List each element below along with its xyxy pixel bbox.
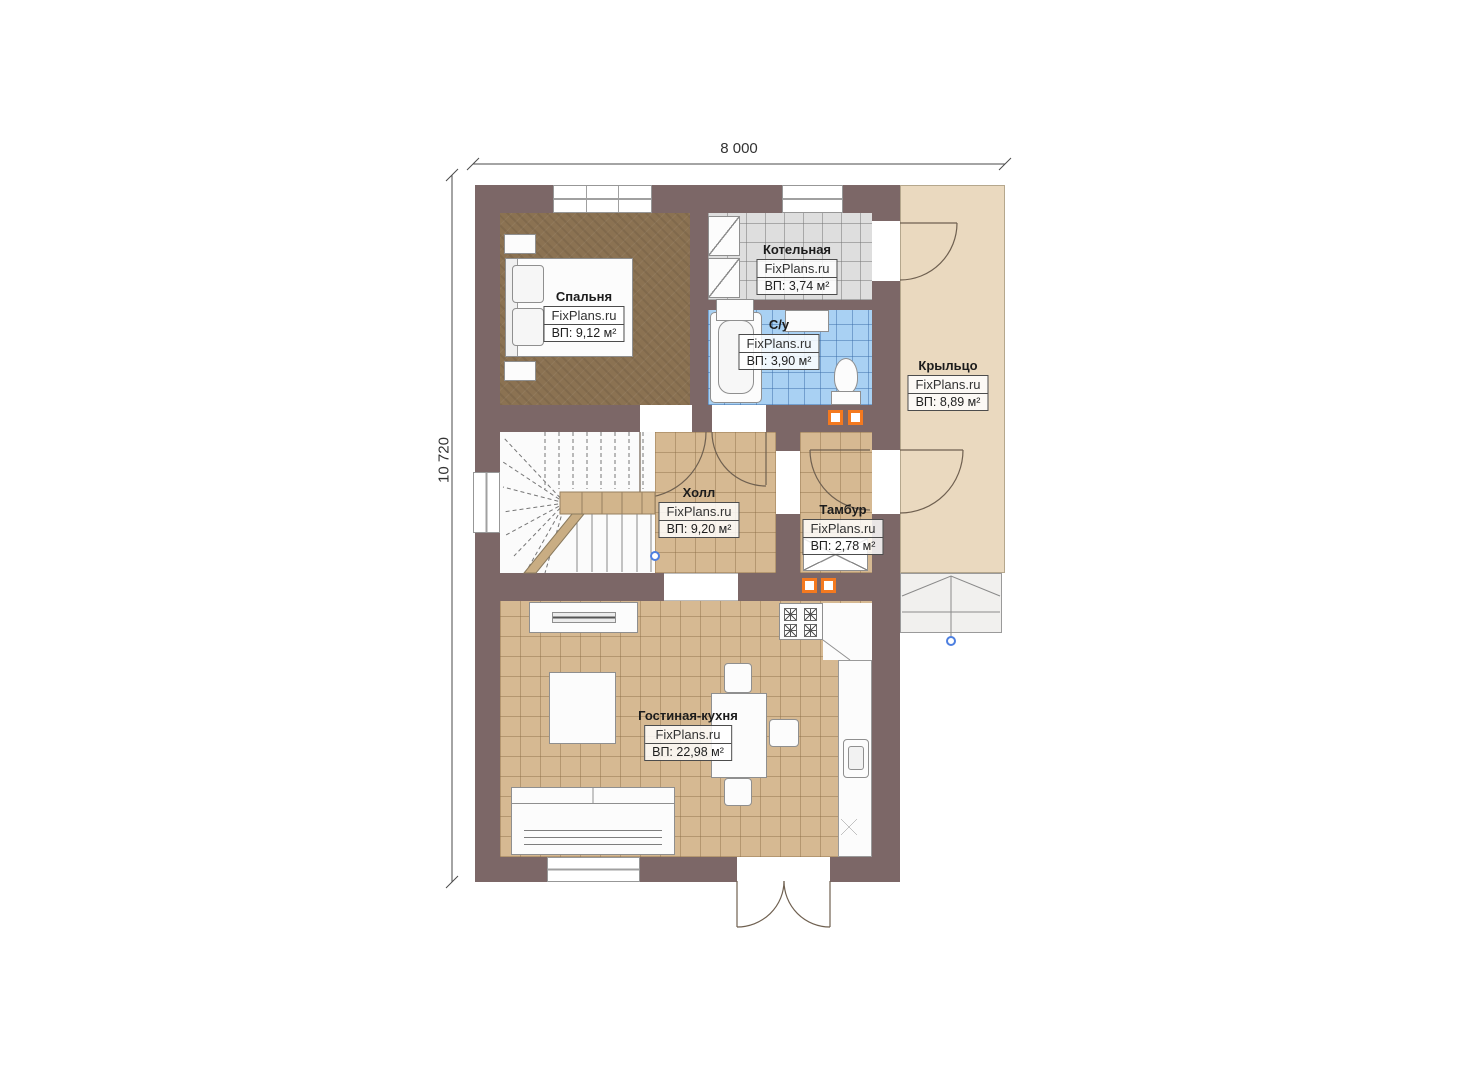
room-area: ВП: 22,98 м² xyxy=(645,744,731,760)
room-label-living: Гостиная-кухня FixPlans.ru ВП: 22,98 м² xyxy=(638,708,738,761)
room-area: ВП: 3,90 м² xyxy=(739,353,818,369)
bathroom-door-arc xyxy=(712,432,766,486)
room-label-bathroom: С/у FixPlans.ru ВП: 3,90 м² xyxy=(738,317,819,370)
room-info-box: FixPlans.ru ВП: 9,20 м² xyxy=(658,502,739,538)
room-label-hall: Холл FixPlans.ru ВП: 9,20 м² xyxy=(658,485,739,538)
floor-plan-canvas: 8 000 10 720 Спальня FixPlans.ru ВП: 9,1… xyxy=(0,0,1474,1080)
room-info-box: FixPlans.ru ВП: 3,74 м² xyxy=(756,259,837,295)
room-area: ВП: 3,74 м² xyxy=(757,278,836,294)
room-area: ВП: 8,89 м² xyxy=(908,394,987,410)
room-label-bedroom: Спальня FixPlans.ru ВП: 9,12 м² xyxy=(543,289,624,342)
brand-label: FixPlans.ru xyxy=(757,260,836,278)
height-dimension-label: 10 720 xyxy=(436,437,453,483)
brand-label: FixPlans.ru xyxy=(739,335,818,353)
room-info-box: FixPlans.ru ВП: 3,90 м² xyxy=(738,334,819,370)
survey-point-icon xyxy=(651,552,659,560)
width-dimension-label: 8 000 xyxy=(720,140,758,157)
entrance-door-arc xyxy=(810,450,870,510)
room-area: ВП: 9,20 м² xyxy=(659,521,738,537)
boiler-porch-door-arc xyxy=(900,223,957,280)
room-label-porch: Крыльцо FixPlans.ru ВП: 8,89 м² xyxy=(907,358,988,411)
staircase-lines xyxy=(503,432,655,573)
room-name: Крыльцо xyxy=(918,358,977,373)
room-label-tambour: Тамбур FixPlans.ru ВП: 2,78 м² xyxy=(802,502,883,555)
stair-landing xyxy=(560,492,655,514)
room-name: Спальня xyxy=(556,289,612,304)
brand-label: FixPlans.ru xyxy=(645,726,731,744)
brand-label: FixPlans.ru xyxy=(803,520,882,538)
french-door-arc xyxy=(784,881,830,927)
room-name: Котельная xyxy=(763,242,831,257)
porch-steps-lines xyxy=(902,576,1000,640)
room-name: Холл xyxy=(683,485,716,500)
room-label-boiler: Котельная FixPlans.ru ВП: 3,74 м² xyxy=(756,242,837,295)
room-area: ВП: 2,78 м² xyxy=(803,538,882,554)
room-info-box: FixPlans.ru ВП: 2,78 м² xyxy=(802,519,883,555)
room-name: Гостиная-кухня xyxy=(638,708,738,723)
room-area: ВП: 9,12 м² xyxy=(544,325,623,341)
room-name: Тамбур xyxy=(819,502,866,517)
room-info-box: FixPlans.ru ВП: 9,12 м² xyxy=(543,306,624,342)
brand-label: FixPlans.ru xyxy=(659,503,738,521)
brand-label: FixPlans.ru xyxy=(544,307,623,325)
french-door-arc xyxy=(737,881,784,927)
room-name: С/у xyxy=(769,317,789,332)
tambour-porch-door-arc xyxy=(900,450,963,513)
brand-label: FixPlans.ru xyxy=(908,376,987,394)
counter-corner-edge xyxy=(823,640,850,660)
room-info-box: FixPlans.ru ВП: 8,89 м² xyxy=(907,375,988,411)
survey-point-icon xyxy=(947,637,955,645)
room-info-box: FixPlans.ru ВП: 22,98 м² xyxy=(644,725,732,761)
plan-lines-layer xyxy=(0,0,1474,1080)
